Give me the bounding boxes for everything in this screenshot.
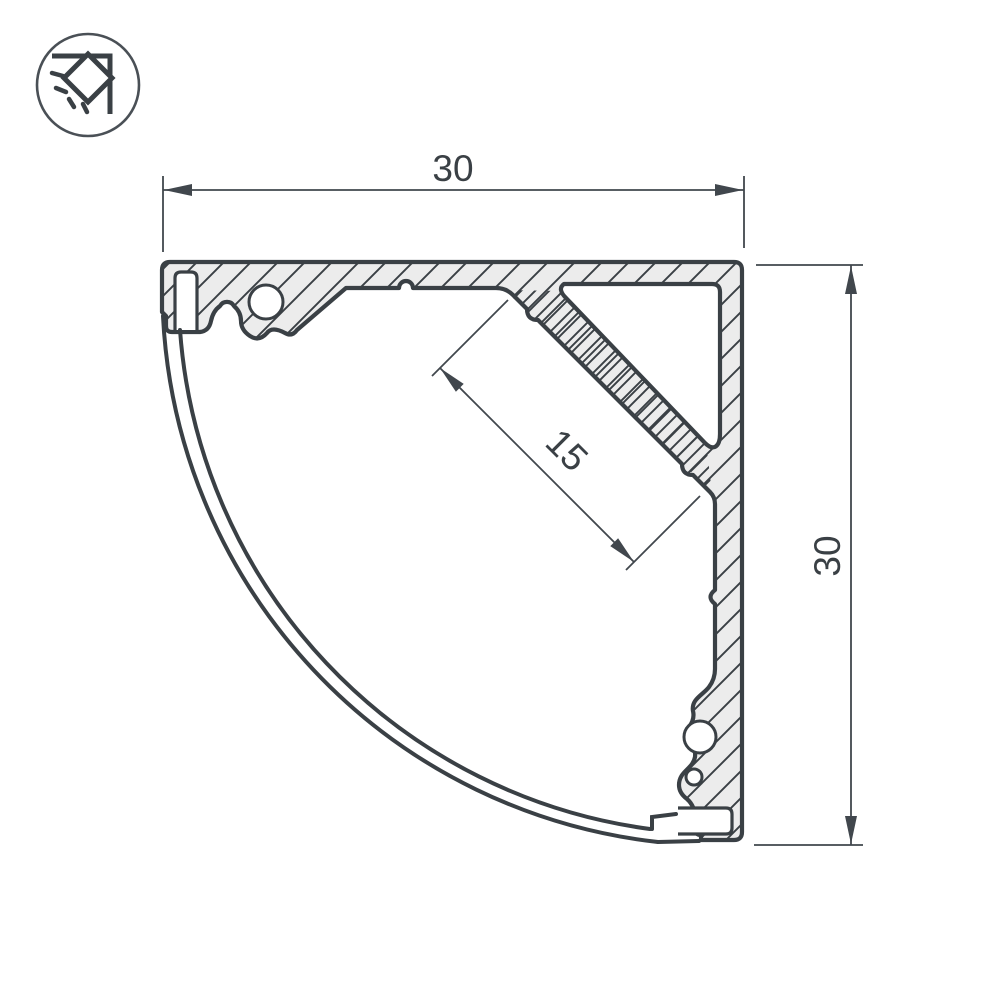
arrow-down <box>845 816 857 844</box>
profile-cross-section-drawing: 30 30 15 <box>0 0 1000 1000</box>
corner-light-icon <box>37 34 139 136</box>
diffuser-slot-top <box>175 272 197 330</box>
profile-drawing-page: 30 30 15 <box>0 0 1000 1000</box>
dimension-height-label: 30 <box>807 535 848 576</box>
dimension-shelf-label: 15 <box>538 421 596 479</box>
extension-line <box>626 496 700 570</box>
icon-lamp-body <box>64 54 112 102</box>
clip-notch-bottom <box>686 769 702 785</box>
arrow-left <box>164 184 192 196</box>
profile-body <box>162 262 742 840</box>
diffuser-bottom-edge <box>658 841 699 842</box>
dimension-width-label: 30 <box>432 148 473 189</box>
screw-port-top <box>249 285 283 319</box>
diffuser-slot-bottom <box>678 808 732 834</box>
dimension-height-right: 30 <box>754 265 863 845</box>
screw-port-bottom <box>684 721 716 753</box>
dimension-line <box>440 368 634 562</box>
arrow-up <box>845 266 857 294</box>
dimension-width-top: 30 <box>163 148 744 252</box>
arrow-right <box>715 184 743 196</box>
diffuser-bottom-hook <box>652 814 676 829</box>
extension-line <box>432 300 508 376</box>
diffuser-outer-arc <box>163 316 658 842</box>
profile-body-group <box>162 262 742 840</box>
